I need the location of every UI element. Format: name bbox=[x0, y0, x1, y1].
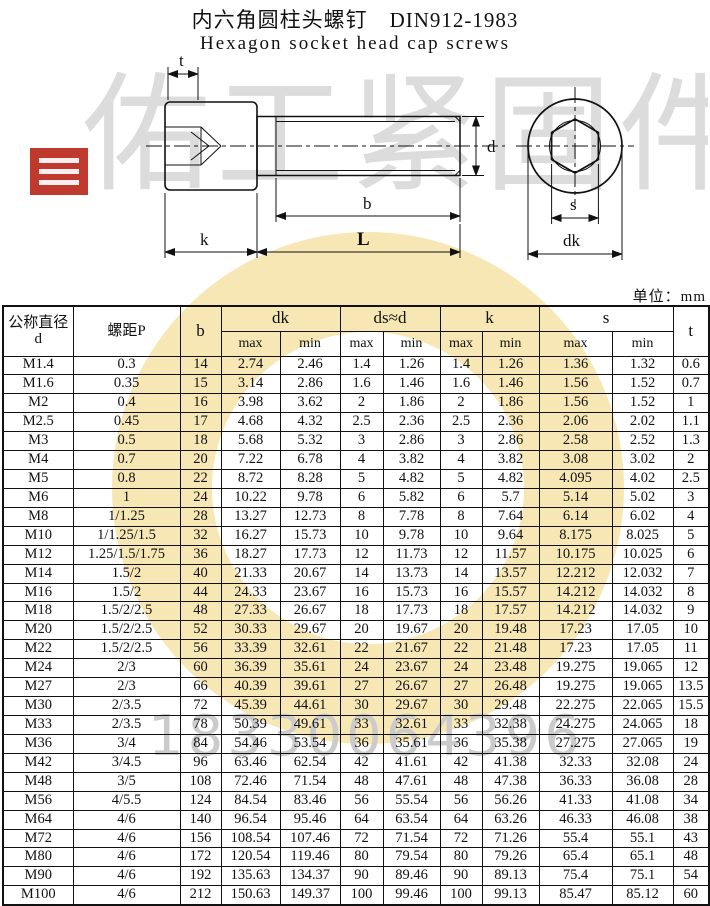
table-cell: 56 bbox=[180, 640, 221, 659]
table-cell: 12.73 bbox=[280, 507, 340, 526]
table-cell: 79.26 bbox=[482, 848, 539, 867]
dim-label-b: b bbox=[363, 194, 372, 213]
table-cell: 4.32 bbox=[280, 413, 340, 432]
header-s-max: max bbox=[539, 331, 612, 356]
table-cell: 7.78 bbox=[383, 507, 440, 526]
table-cell: 14 bbox=[440, 564, 482, 583]
dim-label-t: t bbox=[179, 52, 184, 70]
table-cell: 16.27 bbox=[221, 526, 280, 545]
table-cell: 1.56 bbox=[539, 394, 612, 413]
table-cell: 18.27 bbox=[221, 545, 280, 564]
title-standard: DIN912-1983 bbox=[390, 8, 519, 32]
table-cell: 14.212 bbox=[539, 602, 612, 621]
spec-table: 公称直径 d 螺距P b dk ds≈d k s t max min max m… bbox=[2, 305, 710, 906]
table-cell: 17.73 bbox=[383, 602, 440, 621]
table-cell: 63.46 bbox=[221, 753, 280, 772]
table-row: M644/614096.5495.466463.546463.2646.3346… bbox=[3, 810, 709, 829]
header-ds-max: max bbox=[340, 331, 383, 356]
table-cell: 22 bbox=[180, 470, 221, 489]
table-cell: 29.67 bbox=[383, 697, 440, 716]
table-cell: 75.1 bbox=[612, 867, 673, 886]
table-cell: 2 bbox=[440, 394, 482, 413]
dim-label-d: d bbox=[487, 137, 496, 156]
table-cell: 9.64 bbox=[482, 526, 539, 545]
table-cell: 2 bbox=[340, 394, 383, 413]
table-cell: 4.02 bbox=[612, 470, 673, 489]
table-cell: 3.02 bbox=[612, 451, 673, 470]
table-cell: 96 bbox=[180, 753, 221, 772]
table-cell: 27 bbox=[340, 678, 383, 697]
table-cell: 79.54 bbox=[383, 848, 440, 867]
table-cell: M6 bbox=[3, 488, 73, 507]
table-cell: M27 bbox=[3, 678, 73, 697]
table-cell: 71.54 bbox=[383, 829, 440, 848]
table-cell: 89.46 bbox=[383, 867, 440, 886]
table-cell: 100 bbox=[440, 886, 482, 905]
table-cell: 5.82 bbox=[383, 488, 440, 507]
table-cell: 19.275 bbox=[539, 678, 612, 697]
table-cell: 8 bbox=[673, 583, 709, 602]
table-cell: 72 bbox=[340, 829, 383, 848]
table-cell: 16 bbox=[440, 583, 482, 602]
table-cell: 18 bbox=[340, 602, 383, 621]
screw-technical-drawing: t d b k L s dk bbox=[0, 52, 710, 287]
table-cell: 15.5 bbox=[673, 697, 709, 716]
table-cell: 1.3 bbox=[673, 432, 709, 451]
table-row: M242/36036.3935.612423.672423.4819.27519… bbox=[3, 659, 709, 678]
table-row: M272/36640.3939.612726.672726.4819.27519… bbox=[3, 678, 709, 697]
table-cell: 9 bbox=[673, 602, 709, 621]
table-row: M904/6192135.63134.379089.469089.1375.47… bbox=[3, 867, 709, 886]
table-cell: 1.4 bbox=[340, 356, 383, 375]
table-cell: 80 bbox=[440, 848, 482, 867]
table-cell: 22 bbox=[440, 640, 482, 659]
table-cell: 13.73 bbox=[383, 564, 440, 583]
table-row: M161.5/24424.3323.671615.731615.5714.212… bbox=[3, 583, 709, 602]
table-cell: 3 bbox=[673, 488, 709, 507]
table-cell: 65.1 bbox=[612, 848, 673, 867]
unit-label: 单位：mm bbox=[633, 285, 706, 306]
table-cell: 44 bbox=[180, 583, 221, 602]
table-cell: 124 bbox=[180, 791, 221, 810]
table-cell: 30.33 bbox=[221, 621, 280, 640]
table-cell: 0.8 bbox=[73, 470, 180, 489]
header-s: s bbox=[539, 306, 673, 331]
table-cell: 14.032 bbox=[612, 602, 673, 621]
table-cell: 108 bbox=[180, 772, 221, 791]
table-cell: 1.26 bbox=[482, 356, 539, 375]
table-cell: M3 bbox=[3, 432, 73, 451]
table-cell: M22 bbox=[3, 640, 73, 659]
table-row: M423/4.59663.4662.544241.614241.3832.333… bbox=[3, 753, 709, 772]
table-cell: M2 bbox=[3, 394, 73, 413]
table-cell: 72 bbox=[440, 829, 482, 848]
table-cell: 14 bbox=[180, 356, 221, 375]
header-dk: dk bbox=[221, 306, 340, 331]
table-cell: 32.61 bbox=[383, 716, 440, 735]
table-cell: 42 bbox=[340, 753, 383, 772]
table-cell: 108.54 bbox=[221, 829, 280, 848]
table-cell: 35.38 bbox=[482, 734, 539, 753]
table-cell: 1 bbox=[673, 394, 709, 413]
table-cell: 29.67 bbox=[280, 621, 340, 640]
table-cell: 0.45 bbox=[73, 413, 180, 432]
table-cell: 6.14 bbox=[539, 507, 612, 526]
table-cell: 17.73 bbox=[280, 545, 340, 564]
table-cell: 1.86 bbox=[383, 394, 440, 413]
table-cell: 2/3.5 bbox=[73, 716, 180, 735]
header-k-max: max bbox=[440, 331, 482, 356]
table-cell: 21.48 bbox=[482, 640, 539, 659]
table-cell: 13.5 bbox=[673, 678, 709, 697]
table-cell: 63.26 bbox=[482, 810, 539, 829]
table-cell: 26.67 bbox=[280, 602, 340, 621]
table-cell: 50.39 bbox=[221, 716, 280, 735]
table-cell: 15.57 bbox=[482, 583, 539, 602]
table-cell: 10 bbox=[673, 621, 709, 640]
table-cell: 1.36 bbox=[539, 356, 612, 375]
table-cell: 18 bbox=[180, 432, 221, 451]
table-cell: 7.22 bbox=[221, 451, 280, 470]
table-cell: 3.08 bbox=[539, 451, 612, 470]
table-row: M101/1.25/1.53216.2715.73109.78109.648.1… bbox=[3, 526, 709, 545]
table-cell: 26.48 bbox=[482, 678, 539, 697]
table-cell: 135.63 bbox=[221, 867, 280, 886]
table-cell: 41.38 bbox=[482, 753, 539, 772]
table-cell: 6 bbox=[340, 488, 383, 507]
table-cell: 47.38 bbox=[482, 772, 539, 791]
table-cell: M1.4 bbox=[3, 356, 73, 375]
table-cell: 11.73 bbox=[383, 545, 440, 564]
table-cell: 55.54 bbox=[383, 791, 440, 810]
table-cell: 32.61 bbox=[280, 640, 340, 659]
table-cell: 2/3.5 bbox=[73, 697, 180, 716]
table-cell: 4.095 bbox=[539, 470, 612, 489]
table-cell: 1.26 bbox=[383, 356, 440, 375]
table-cell: 83.46 bbox=[280, 791, 340, 810]
table-cell: 1.6 bbox=[440, 375, 482, 394]
table-cell: 20.67 bbox=[280, 564, 340, 583]
table-cell: 5.14 bbox=[539, 488, 612, 507]
table-cell: 42 bbox=[440, 753, 482, 772]
table-cell: 22.275 bbox=[539, 697, 612, 716]
table-cell: 2.06 bbox=[539, 413, 612, 432]
table-cell: 0.4 bbox=[73, 394, 180, 413]
table-row: M724/6156108.54107.467271.547271.2655.45… bbox=[3, 829, 709, 848]
table-cell: 3.14 bbox=[221, 375, 280, 394]
table-cell: 60 bbox=[673, 886, 709, 905]
table-cell: 36.33 bbox=[539, 772, 612, 791]
table-cell: 39.61 bbox=[280, 678, 340, 697]
table-cell: 2.58 bbox=[539, 432, 612, 451]
table-cell: M5 bbox=[3, 470, 73, 489]
table-cell: 4.68 bbox=[221, 413, 280, 432]
table-cell: 12 bbox=[340, 545, 383, 564]
table-cell: 20 bbox=[180, 451, 221, 470]
table-cell: 192 bbox=[180, 867, 221, 886]
table-cell: 46.33 bbox=[539, 810, 612, 829]
table-cell: 54 bbox=[673, 867, 709, 886]
table-row: M40.7207.226.7843.8243.823.083.022 bbox=[3, 451, 709, 470]
table-cell: 34 bbox=[673, 791, 709, 810]
table-cell: 75.4 bbox=[539, 867, 612, 886]
table-cell: 60 bbox=[180, 659, 221, 678]
table-cell: 12 bbox=[673, 659, 709, 678]
table-cell: 41.08 bbox=[612, 791, 673, 810]
table-cell: 19.48 bbox=[482, 621, 539, 640]
table-cell: 6.78 bbox=[280, 451, 340, 470]
table-cell: 15 bbox=[180, 375, 221, 394]
table-cell: 19 bbox=[673, 734, 709, 753]
table-cell: 21.33 bbox=[221, 564, 280, 583]
table-cell: 3 bbox=[440, 432, 482, 451]
table-cell: M4 bbox=[3, 451, 73, 470]
screw-shank-outline bbox=[257, 117, 460, 176]
table-cell: 27.065 bbox=[612, 734, 673, 753]
table-cell: 32.38 bbox=[482, 716, 539, 735]
table-cell: 212 bbox=[180, 886, 221, 905]
table-cell: 43 bbox=[673, 829, 709, 848]
table-cell: 150.63 bbox=[221, 886, 280, 905]
table-cell: 1.5/2/2.5 bbox=[73, 640, 180, 659]
table-cell: 2.46 bbox=[280, 356, 340, 375]
table-cell: 19.275 bbox=[539, 659, 612, 678]
table-cell: 0.5 bbox=[73, 432, 180, 451]
table-cell: M14 bbox=[3, 564, 73, 583]
table-cell: 89.13 bbox=[482, 867, 539, 886]
table-cell: 3.62 bbox=[280, 394, 340, 413]
table-cell: 2.86 bbox=[383, 432, 440, 451]
table-cell: 64 bbox=[340, 810, 383, 829]
table-cell: 4.82 bbox=[383, 470, 440, 489]
table-cell: 2.36 bbox=[383, 413, 440, 432]
table-cell: 5.7 bbox=[482, 488, 539, 507]
table-cell: 5.02 bbox=[612, 488, 673, 507]
dim-t bbox=[168, 67, 198, 100]
table-cell: 140 bbox=[180, 810, 221, 829]
table-cell: 28 bbox=[673, 772, 709, 791]
table-cell: 12 bbox=[440, 545, 482, 564]
table-cell: 1.6 bbox=[340, 375, 383, 394]
header-k: k bbox=[440, 306, 539, 331]
table-cell: 29.48 bbox=[482, 697, 539, 716]
table-cell: 24 bbox=[440, 659, 482, 678]
table-cell: 64 bbox=[440, 810, 482, 829]
table-cell: 36 bbox=[440, 734, 482, 753]
table-cell: 1.5/2/2.5 bbox=[73, 602, 180, 621]
table-row: M302/3.57245.3944.613029.673029.4822.275… bbox=[3, 697, 709, 716]
table-cell: 62.54 bbox=[280, 753, 340, 772]
table-cell: 3 bbox=[340, 432, 383, 451]
table-cell: 9.78 bbox=[280, 488, 340, 507]
header-ds-min: min bbox=[383, 331, 440, 356]
table-cell: M33 bbox=[3, 716, 73, 735]
table-cell: 48 bbox=[340, 772, 383, 791]
table-row: M804/6172120.54119.468079.548079.2665.46… bbox=[3, 848, 709, 867]
table-cell: 36.08 bbox=[612, 772, 673, 791]
table-cell: 1.1 bbox=[673, 413, 709, 432]
table-cell: 16 bbox=[340, 583, 383, 602]
table-cell: 134.37 bbox=[280, 867, 340, 886]
table-cell: 6.02 bbox=[612, 507, 673, 526]
table-row: M363/48454.4653.543635.613635.3827.27527… bbox=[3, 734, 709, 753]
table-cell: 21.67 bbox=[383, 640, 440, 659]
table-cell: 23.67 bbox=[280, 583, 340, 602]
table-cell: 90 bbox=[340, 867, 383, 886]
table-cell: 24.065 bbox=[612, 716, 673, 735]
table-cell: 71.54 bbox=[280, 772, 340, 791]
table-cell: 4/6 bbox=[73, 886, 180, 905]
table-cell: 2.02 bbox=[612, 413, 673, 432]
table-cell: M18 bbox=[3, 602, 73, 621]
table-cell: 19.065 bbox=[612, 678, 673, 697]
table-cell: 33.39 bbox=[221, 640, 280, 659]
dim-label-dk: dk bbox=[563, 231, 581, 250]
table-cell: 7.64 bbox=[482, 507, 539, 526]
table-cell: 1.4 bbox=[440, 356, 482, 375]
table-cell: 22.065 bbox=[612, 697, 673, 716]
header-pitch: 螺距P bbox=[73, 306, 180, 356]
table-cell: 66 bbox=[180, 678, 221, 697]
table-cell: 33 bbox=[440, 716, 482, 735]
table-cell: 18 bbox=[440, 602, 482, 621]
table-cell: 107.46 bbox=[280, 829, 340, 848]
table-cell: 18 bbox=[673, 716, 709, 735]
table-cell: 96.54 bbox=[221, 810, 280, 829]
table-cell: 17 bbox=[180, 413, 221, 432]
header-nominal-diameter: 公称直径 d bbox=[3, 306, 73, 356]
table-cell: 41.33 bbox=[539, 791, 612, 810]
table-cell: 10 bbox=[340, 526, 383, 545]
spec-sheet-page: { "title": { "cn": "内六角圆柱头螺钉", "standard… bbox=[0, 0, 710, 904]
table-cell: 15.73 bbox=[383, 583, 440, 602]
table-cell: M72 bbox=[3, 829, 73, 848]
page-title: 内六角圆柱头螺钉DIN912-1983 bbox=[0, 4, 710, 34]
table-cell: M90 bbox=[3, 867, 73, 886]
table-row: M201.5/2/2.55230.3329.672019.672019.4817… bbox=[3, 621, 709, 640]
dim-label-L: L bbox=[357, 229, 370, 250]
table-cell: 2.5 bbox=[673, 470, 709, 489]
table-cell: 1/1.25/1.5 bbox=[73, 526, 180, 545]
table-row: M181.5/2/2.54827.3326.671817.731817.5714… bbox=[3, 602, 709, 621]
table-cell: 5 bbox=[340, 470, 383, 489]
table-cell: 1.32 bbox=[612, 356, 673, 375]
table-cell: 71.26 bbox=[482, 829, 539, 848]
table-cell: 12.212 bbox=[539, 564, 612, 583]
table-cell: 53.54 bbox=[280, 734, 340, 753]
table-row: M564/5.512484.5483.465655.545656.2641.33… bbox=[3, 791, 709, 810]
header-dk-min: min bbox=[280, 331, 340, 356]
table-cell: 24 bbox=[340, 659, 383, 678]
table-cell: 23.67 bbox=[383, 659, 440, 678]
table-cell: 2.5 bbox=[340, 413, 383, 432]
dim-label-s: s bbox=[570, 195, 577, 214]
table-cell: 2/3 bbox=[73, 678, 180, 697]
table-cell: 2.74 bbox=[221, 356, 280, 375]
table-cell: 10.22 bbox=[221, 488, 280, 507]
table-cell: 99.13 bbox=[482, 886, 539, 905]
table-cell: 2 bbox=[673, 451, 709, 470]
header-b: b bbox=[180, 306, 221, 356]
table-cell: 3/4.5 bbox=[73, 753, 180, 772]
table-cell: 14.032 bbox=[612, 583, 673, 602]
table-cell: 8.175 bbox=[539, 526, 612, 545]
table-cell: 84.54 bbox=[221, 791, 280, 810]
table-cell: 32.08 bbox=[612, 753, 673, 772]
table-cell: 45.39 bbox=[221, 697, 280, 716]
table-cell: 10.025 bbox=[612, 545, 673, 564]
table-cell: 13.57 bbox=[482, 564, 539, 583]
table-cell: M56 bbox=[3, 791, 73, 810]
table-cell: 1 bbox=[73, 488, 180, 507]
table-cell: 119.46 bbox=[280, 848, 340, 867]
table-cell: 2.5 bbox=[440, 413, 482, 432]
table-cell: 16 bbox=[180, 394, 221, 413]
table-cell: 1.52 bbox=[612, 375, 673, 394]
table-cell: 80 bbox=[340, 848, 383, 867]
table-cell: 36.39 bbox=[221, 659, 280, 678]
table-cell: 5 bbox=[440, 470, 482, 489]
table-cell: 2/3 bbox=[73, 659, 180, 678]
table-cell: 0.7 bbox=[673, 375, 709, 394]
header-ds: ds≈d bbox=[340, 306, 440, 331]
dim-label-k: k bbox=[200, 230, 209, 249]
table-row: M1004/6212150.63149.3710099.4610099.1385… bbox=[3, 886, 709, 905]
table-cell: 3.82 bbox=[482, 451, 539, 470]
table-cell: 0.35 bbox=[73, 375, 180, 394]
table-cell: 2.86 bbox=[280, 375, 340, 394]
table-cell: 49.61 bbox=[280, 716, 340, 735]
table-cell: 1.25/1.5/1.75 bbox=[73, 545, 180, 564]
table-cell: 55.1 bbox=[612, 829, 673, 848]
table-row: M2.50.45174.684.322.52.362.52.362.062.02… bbox=[3, 413, 709, 432]
table-cell: 27 bbox=[440, 678, 482, 697]
table-cell: 27.275 bbox=[539, 734, 612, 753]
table-cell: 36 bbox=[180, 545, 221, 564]
header-dk-max: max bbox=[221, 331, 280, 356]
table-cell: 36 bbox=[340, 734, 383, 753]
table-cell: 172 bbox=[180, 848, 221, 867]
table-cell: M16 bbox=[3, 583, 73, 602]
table-cell: 84 bbox=[180, 734, 221, 753]
table-cell: 1.52 bbox=[612, 394, 673, 413]
table-cell: 8.025 bbox=[612, 526, 673, 545]
table-cell: 12.032 bbox=[612, 564, 673, 583]
table-cell: 46.08 bbox=[612, 810, 673, 829]
table-cell: 11 bbox=[673, 640, 709, 659]
table-cell: 4/6 bbox=[73, 810, 180, 829]
table-cell: 10 bbox=[440, 526, 482, 545]
table-cell: 4 bbox=[340, 451, 383, 470]
table-cell: 5.32 bbox=[280, 432, 340, 451]
table-cell: 17.23 bbox=[539, 621, 612, 640]
table-cell: 65.4 bbox=[539, 848, 612, 867]
table-cell: 63.54 bbox=[383, 810, 440, 829]
table-cell: 72 bbox=[180, 697, 221, 716]
table-cell: 7 bbox=[673, 564, 709, 583]
table-row: M1.60.35153.142.861.61.461.61.461.561.52… bbox=[3, 375, 709, 394]
table-cell: 52 bbox=[180, 621, 221, 640]
table-cell: M64 bbox=[3, 810, 73, 829]
table-cell: 3/4 bbox=[73, 734, 180, 753]
table-cell: 4/6 bbox=[73, 867, 180, 886]
header-k-min: min bbox=[482, 331, 539, 356]
table-cell: 56.26 bbox=[482, 791, 539, 810]
table-cell: M100 bbox=[3, 886, 73, 905]
table-cell: 2.36 bbox=[482, 413, 539, 432]
table-cell: 4 bbox=[440, 451, 482, 470]
table-cell: 100 bbox=[340, 886, 383, 905]
